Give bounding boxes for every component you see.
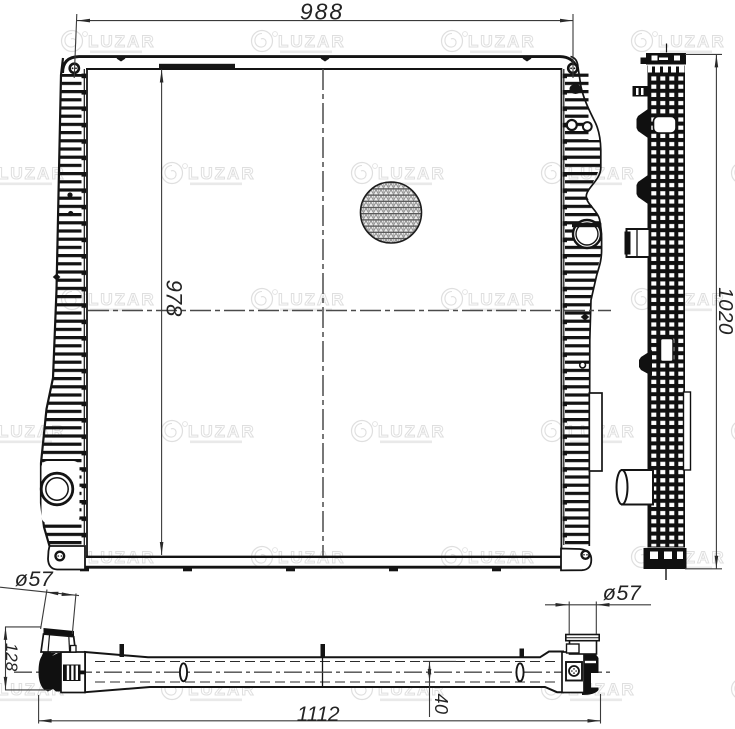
svg-text:978: 978	[162, 280, 187, 317]
svg-text:ø57: ø57	[603, 581, 642, 605]
svg-text:40: 40	[431, 693, 451, 714]
svg-text:128: 128	[2, 643, 21, 672]
svg-text:1020: 1020	[714, 287, 735, 335]
svg-text:1112: 1112	[297, 703, 340, 726]
svg-text:988: 988	[300, 0, 344, 25]
svg-text:ø57: ø57	[15, 567, 54, 591]
